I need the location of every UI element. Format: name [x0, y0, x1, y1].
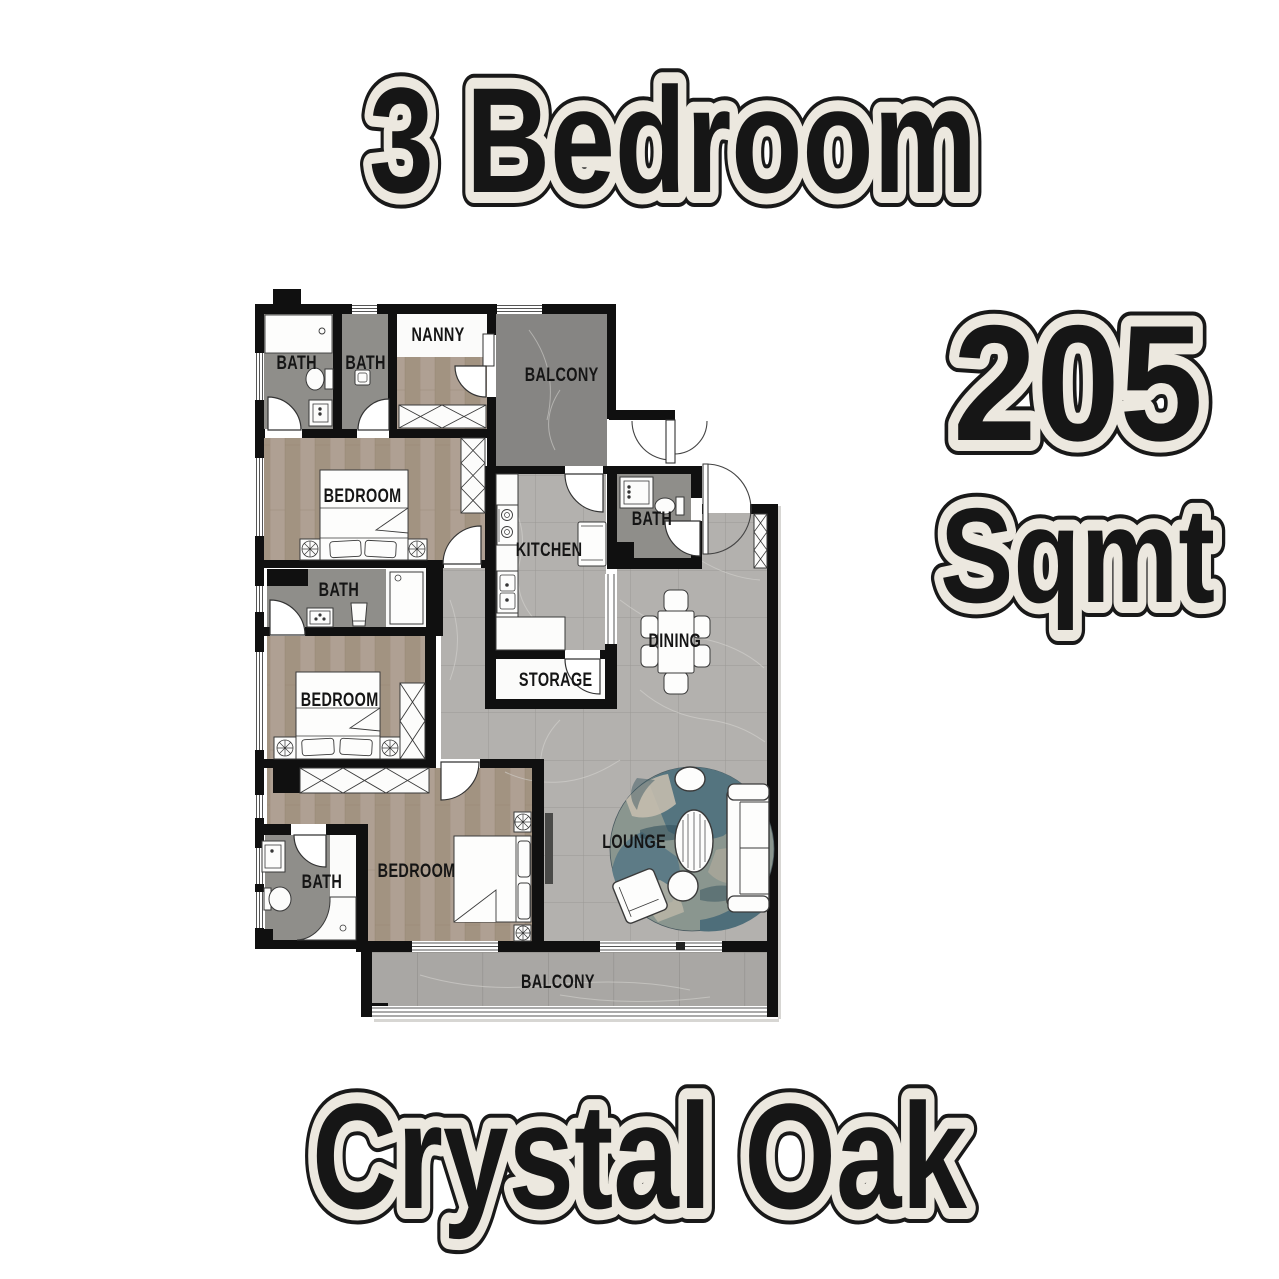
svg-text:STORAGE: STORAGE	[519, 668, 593, 691]
svg-text:Crystal Oak: Crystal Oak	[312, 1072, 967, 1240]
svg-text:DINING: DINING	[649, 629, 702, 652]
svg-text:BATH: BATH	[277, 351, 317, 374]
svg-text:BEDROOM: BEDROOM	[324, 484, 402, 507]
svg-text:BEDROOM: BEDROOM	[378, 859, 456, 882]
svg-text:NANNY: NANNY	[412, 323, 465, 346]
svg-text:KITCHEN: KITCHEN	[516, 538, 583, 561]
svg-text:LOUNGE: LOUNGE	[602, 830, 666, 853]
svg-text:Sqmt: Sqmt	[940, 480, 1215, 631]
svg-text:BALCONY: BALCONY	[525, 363, 599, 386]
svg-text:BATH: BATH	[632, 507, 672, 530]
svg-text:BATH: BATH	[302, 870, 342, 893]
svg-text:BEDROOM: BEDROOM	[301, 688, 379, 711]
svg-text:205: 205	[953, 291, 1203, 475]
svg-text:BALCONY: BALCONY	[521, 970, 595, 993]
svg-text:3 Bedroom: 3 Bedroom	[369, 56, 977, 224]
svg-text:BATH: BATH	[345, 351, 385, 374]
svg-text:BATH: BATH	[319, 578, 359, 601]
